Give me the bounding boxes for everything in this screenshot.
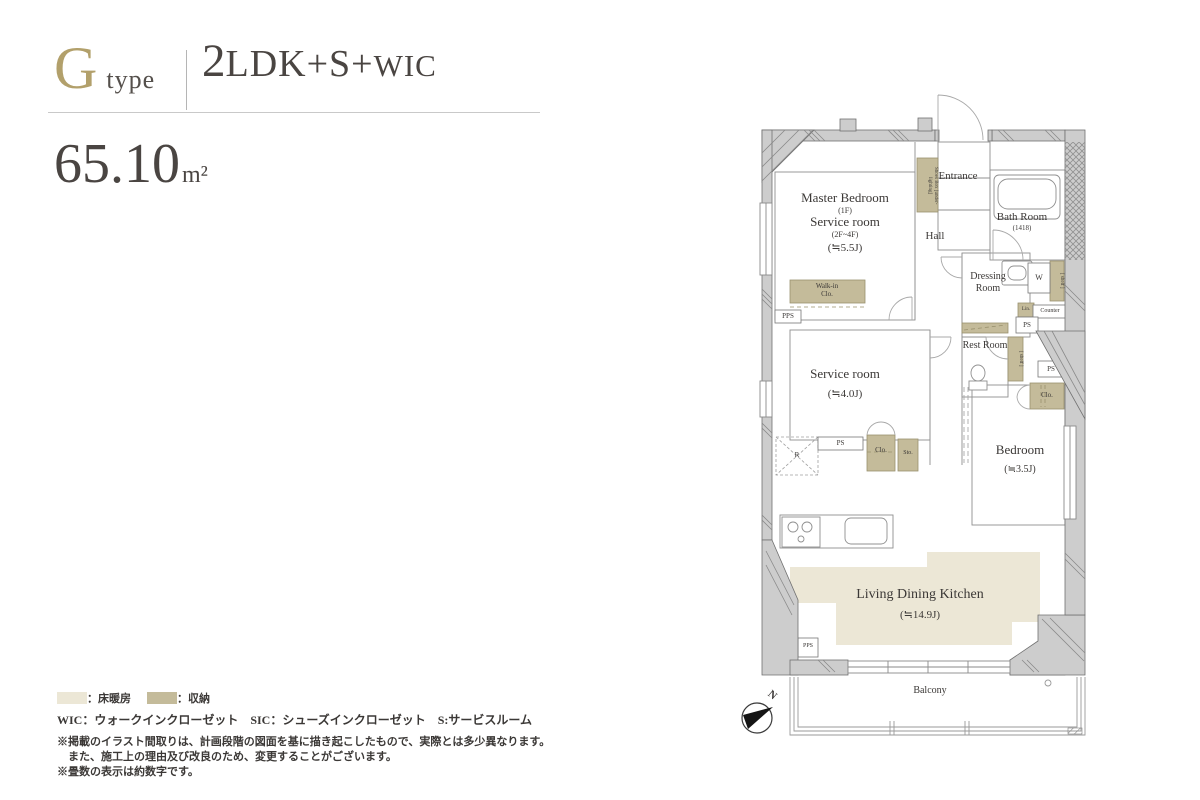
note-line-1: ※掲載のイラスト間取りは、計画段階の図面を基に描き起こしたもので、実際とは多少異… xyxy=(57,735,550,750)
bedroom-closet-label: Clo. xyxy=(1030,391,1064,399)
notes: ※掲載のイラスト間取りは、計画段階の図面を基に描き起こしたもので、実際とは多少異… xyxy=(57,735,550,780)
hall-label: Hall xyxy=(910,230,960,243)
bathroom-label: Bath Room (1418) xyxy=(987,211,1057,232)
note-line-2: また、施工上の理由及び改良のため、変更することがございます。 xyxy=(57,750,550,765)
area-value: 65.10 xyxy=(54,136,180,192)
unit-type-title: G type xyxy=(54,38,155,98)
entrance-label: Entrance xyxy=(930,170,986,183)
walk-in-closet-label: Walk-in Clo. xyxy=(810,282,844,298)
service-room-size: (≒4.0J) xyxy=(780,388,910,401)
service-room-name: Service room xyxy=(780,367,910,382)
rest-room-label: Rest Room xyxy=(962,340,1008,352)
master-bedroom-altname: Service room xyxy=(780,215,910,230)
counter-label: Counter xyxy=(1033,308,1067,315)
ps-label-1: PS xyxy=(1016,321,1038,329)
refrigerator-label: R xyxy=(776,451,818,459)
floorplan: Master Bedroom (1F) Service room (2F~4F)… xyxy=(740,85,1100,760)
layout-ldk: LDK+S+ xyxy=(226,45,374,83)
storage-label: Sto. xyxy=(898,450,918,457)
master-bedroom-name: Master Bedroom xyxy=(780,191,910,206)
title-divider xyxy=(186,50,187,110)
legend: ：床暖房 ：収納 xyxy=(57,690,210,706)
dressing-room-label: Dressing Room xyxy=(958,271,1018,294)
shelf-label-2: [ shelf ] xyxy=(1008,339,1023,379)
shoes-box-label: Shoes Box [under-lighting] xyxy=(917,160,938,211)
storage-label: ：収納 xyxy=(177,690,210,706)
unit-layout-title: 2 LDK+S+ WIC xyxy=(202,38,437,85)
master-bedroom-label: Master Bedroom (1F) Service room (2F~4F)… xyxy=(780,191,910,255)
ldk-size: (≒14.9J) xyxy=(840,609,1000,622)
storage-swatch xyxy=(147,692,177,704)
unit-type-letter: G xyxy=(54,38,97,98)
kitchen-closet-label: Clo. xyxy=(867,446,895,454)
bathroom-size: (1418) xyxy=(987,224,1057,232)
master-bedroom-floor2: (2F~4F) xyxy=(780,230,910,239)
abbreviations-line: WIC：ウォークインクローゼット SIC：シューズインクローゼット S:サービス… xyxy=(57,711,532,728)
floor-heating-label: ：床暖房 xyxy=(87,690,131,706)
bedroom-name: Bedroom xyxy=(980,443,1060,458)
ps-label-kitchen: PS xyxy=(818,439,863,447)
master-bedroom-size: (≒5.5J) xyxy=(780,242,910,255)
kitchen-counter xyxy=(782,517,887,547)
area-unit: m² xyxy=(182,163,208,187)
ldk-name: Living Dining Kitchen xyxy=(840,587,1000,603)
bathroom-name: Bath Room xyxy=(987,211,1057,224)
layout-number: 2 xyxy=(202,38,226,85)
linen-label: Lin. xyxy=(1018,307,1034,313)
layout-wic: WIC xyxy=(374,50,437,81)
toilet xyxy=(969,365,987,390)
service-room-label: Service room (≒4.0J) xyxy=(780,367,910,401)
header-rule xyxy=(48,112,540,113)
washer-label: W xyxy=(1028,273,1050,282)
pps-label-top: PPS xyxy=(775,312,801,320)
shelf-label-1: [ shelf ] xyxy=(1050,263,1064,299)
bedroom-size: (≒3.5J) xyxy=(980,464,1060,476)
crosshatch-wall xyxy=(1065,142,1085,260)
ps-label-2: PS xyxy=(1038,365,1064,373)
pps-label-bottom: PPS xyxy=(798,643,818,650)
floorplan-page: G type 2 LDK+S+ WIC 65.10 m² xyxy=(0,0,1200,800)
bedroom-label: Bedroom (≒3.5J) xyxy=(980,443,1060,475)
balcony-label: Balcony xyxy=(870,685,990,697)
compass-icon xyxy=(742,703,773,733)
note-line-3: ※畳数の表示は約数字です。 xyxy=(57,765,550,780)
unit-area: 65.10 m² xyxy=(54,136,208,192)
balcony-hatch xyxy=(1068,728,1082,734)
unit-type-word: type xyxy=(106,67,155,93)
floor-heating-swatch xyxy=(57,692,87,704)
ldk-label: Living Dining Kitchen (≒14.9J) xyxy=(840,587,1000,622)
